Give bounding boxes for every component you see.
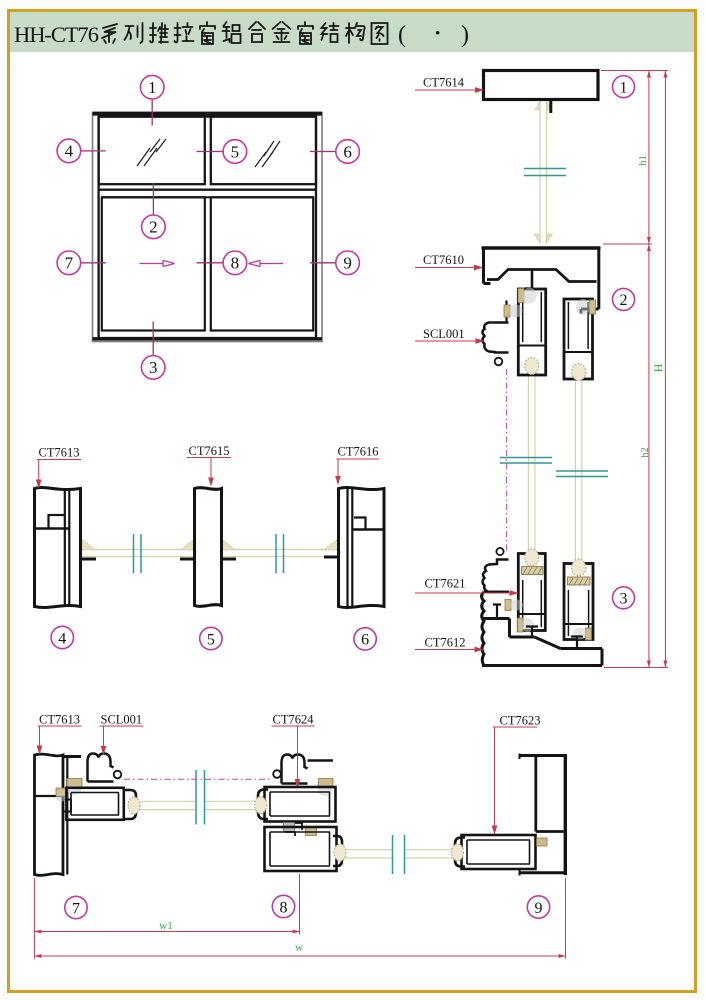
svg-text:CT7610: CT7610 [423, 253, 464, 267]
svg-text:H: H [653, 364, 665, 372]
svg-text:SCL001: SCL001 [423, 327, 465, 341]
svg-text:h2: h2 [640, 447, 651, 458]
svg-text:4: 4 [65, 142, 74, 161]
svg-text:6: 6 [343, 142, 352, 161]
svg-text:4: 4 [58, 630, 66, 647]
svg-text:8: 8 [280, 899, 288, 916]
svg-text:CT7612: CT7612 [425, 636, 466, 650]
svg-text:2: 2 [620, 292, 628, 309]
svg-text:8: 8 [231, 254, 240, 273]
svg-text:CT7623: CT7623 [500, 714, 541, 728]
svg-text:): ) [461, 22, 469, 48]
svg-text:3: 3 [620, 591, 628, 608]
svg-text:(: ( [398, 22, 406, 48]
svg-text:2: 2 [149, 218, 158, 237]
svg-text:7: 7 [65, 254, 74, 273]
svg-text:9: 9 [535, 900, 543, 917]
svg-text:6: 6 [361, 632, 369, 649]
svg-text:CT7621: CT7621 [425, 577, 466, 591]
svg-text:CT7615: CT7615 [189, 444, 230, 458]
svg-text:CT7613: CT7613 [39, 713, 80, 727]
svg-text:1: 1 [620, 80, 628, 97]
svg-text:3: 3 [149, 358, 158, 377]
svg-text:1: 1 [148, 78, 157, 97]
svg-text:w: w [295, 942, 303, 954]
svg-text:CT7624: CT7624 [273, 713, 315, 727]
svg-text:CT7613: CT7613 [39, 446, 80, 460]
svg-text:SCL001: SCL001 [101, 713, 143, 727]
svg-text:5: 5 [231, 142, 240, 161]
svg-text:h1: h1 [638, 155, 649, 166]
svg-text:5: 5 [207, 631, 215, 648]
svg-text:CT7614: CT7614 [423, 76, 465, 90]
svg-text:HH-CT76: HH-CT76 [14, 22, 99, 47]
svg-text:7: 7 [72, 900, 80, 917]
svg-text:w1: w1 [159, 920, 172, 932]
svg-text:9: 9 [343, 254, 352, 273]
svg-text:·: · [434, 20, 441, 45]
svg-text:CT7616: CT7616 [338, 445, 379, 459]
